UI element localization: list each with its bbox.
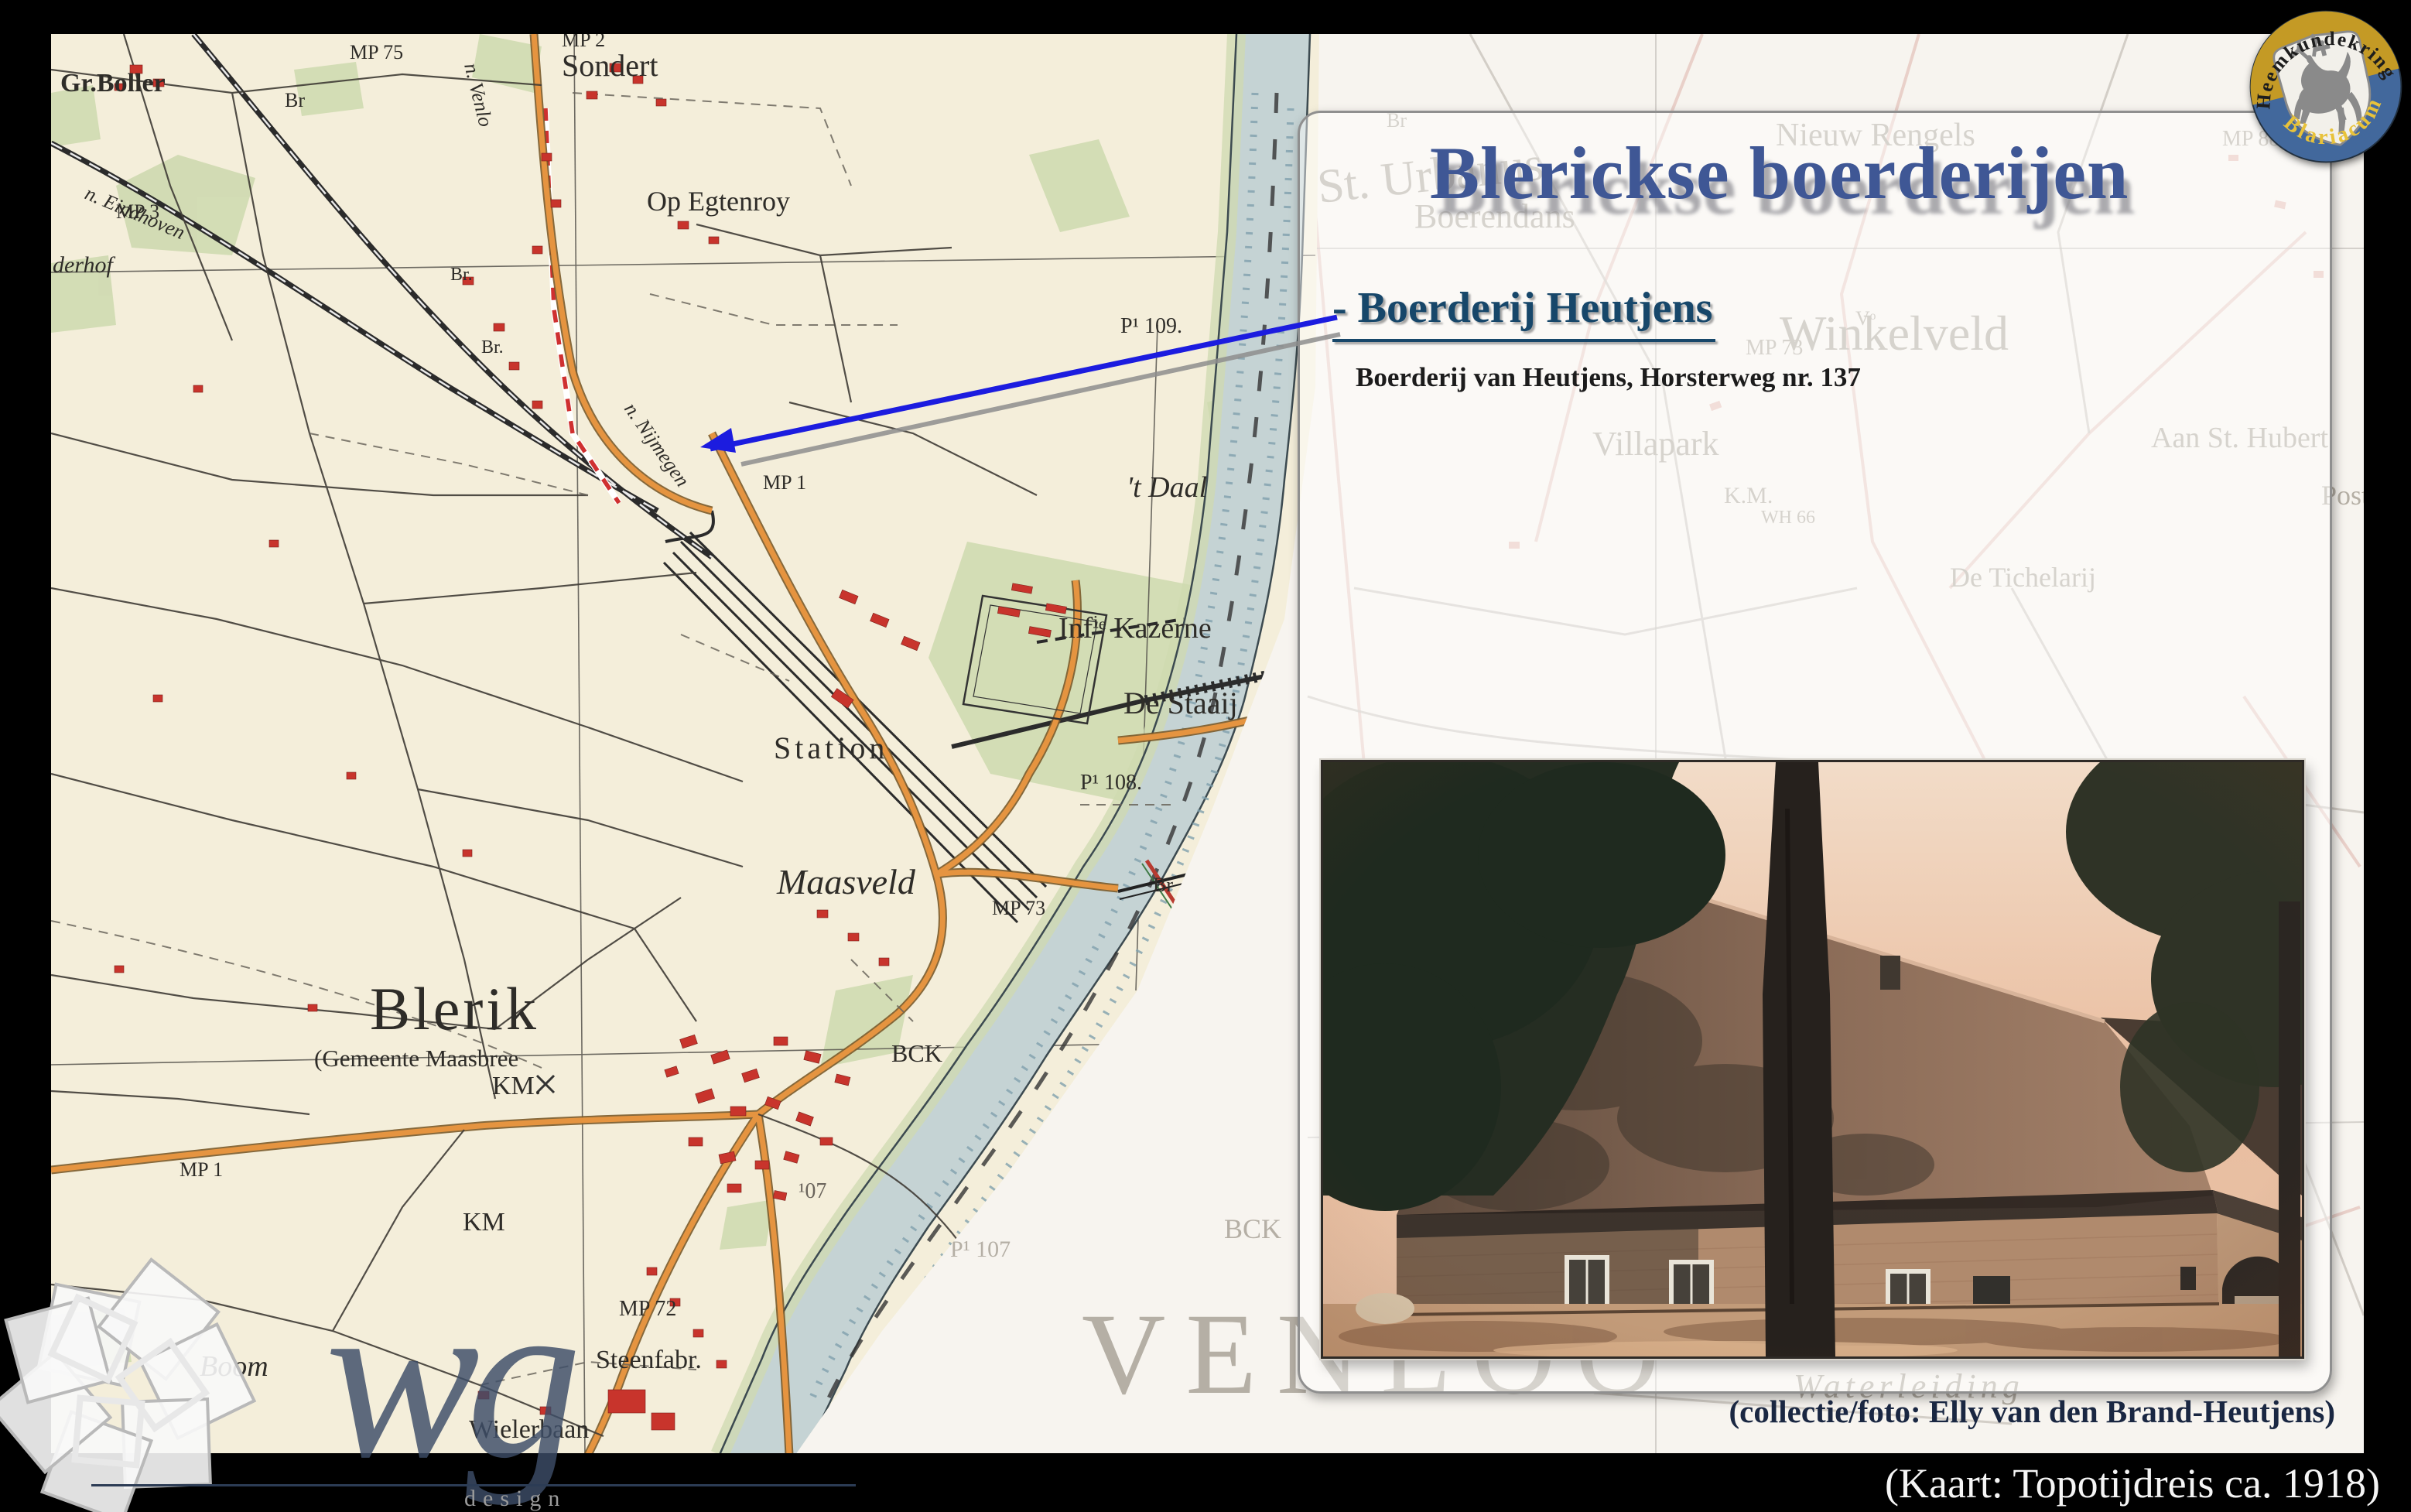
map-label: Maasveld [776, 862, 916, 901]
map-label: Steenfabr. [596, 1346, 702, 1374]
farm-heading[interactable]: - Boerderij Heutjens [1332, 283, 1715, 342]
map-label: KM [463, 1208, 505, 1237]
map-label: MP 73 [992, 897, 1045, 919]
watermark-script: wg [325, 1261, 568, 1493]
map-label: Br. [450, 265, 473, 285]
map-label: 't Daal [1127, 471, 1207, 504]
frame-top [0, 0, 2411, 34]
map-label: Sondert [562, 48, 658, 83]
map-label: ¹07 [799, 1179, 826, 1203]
map-label: P¹ 107 [950, 1237, 1011, 1262]
map-label: derhof [53, 252, 115, 278]
map-label: De Staaij [1123, 686, 1238, 720]
map-label: MP 1 [763, 471, 806, 494]
photo-caption: (collectie/foto: Elly van den Brand-Heut… [1729, 1393, 2335, 1430]
map-label: Br. [481, 337, 504, 357]
map-label: (Gemeente Maasbree [314, 1045, 518, 1072]
map-label: KM. [492, 1072, 541, 1100]
map-label: Station [774, 730, 888, 765]
map-label: Infⁱᵉ Kazerne [1058, 612, 1212, 645]
page-title: Blerickse boerderijen [1430, 130, 2129, 216]
watermark-design-label: design [464, 1486, 566, 1512]
farmhouse-photo [1321, 760, 2304, 1359]
map-credit: (Kaart: Topotijdreis ca. 1918) [1885, 1459, 2380, 1507]
heemkundekring-blariacum-logo: Heemkundekring Blariacum [2245, 6, 2406, 167]
map-label: P¹ 108. [1080, 771, 1142, 795]
watermark-squares-icon [0, 1246, 325, 1512]
map-label: Op Egtenroy [647, 186, 790, 217]
frame-right [2364, 0, 2411, 1512]
map-label: Gr.Boller [60, 69, 166, 97]
map-label: Br [285, 89, 305, 111]
map-label: P¹ 109. [1120, 314, 1182, 338]
slide: Nieuw RengelsWinkelveldSt. UrbanusBoeren… [0, 0, 2411, 1512]
map-label: Blerik [370, 975, 539, 1042]
map-label: Br [1153, 874, 1173, 896]
map-label: MP 1 [180, 1158, 223, 1181]
map-label: BCK [1224, 1213, 1281, 1244]
map-label: BCK [891, 1039, 942, 1067]
map-label: MP 72 [619, 1297, 676, 1321]
map-label: MP 75 [350, 41, 403, 63]
farm-subheading: Boerderij van Heutjens, Horsterweg nr. 1… [1356, 362, 1861, 393]
